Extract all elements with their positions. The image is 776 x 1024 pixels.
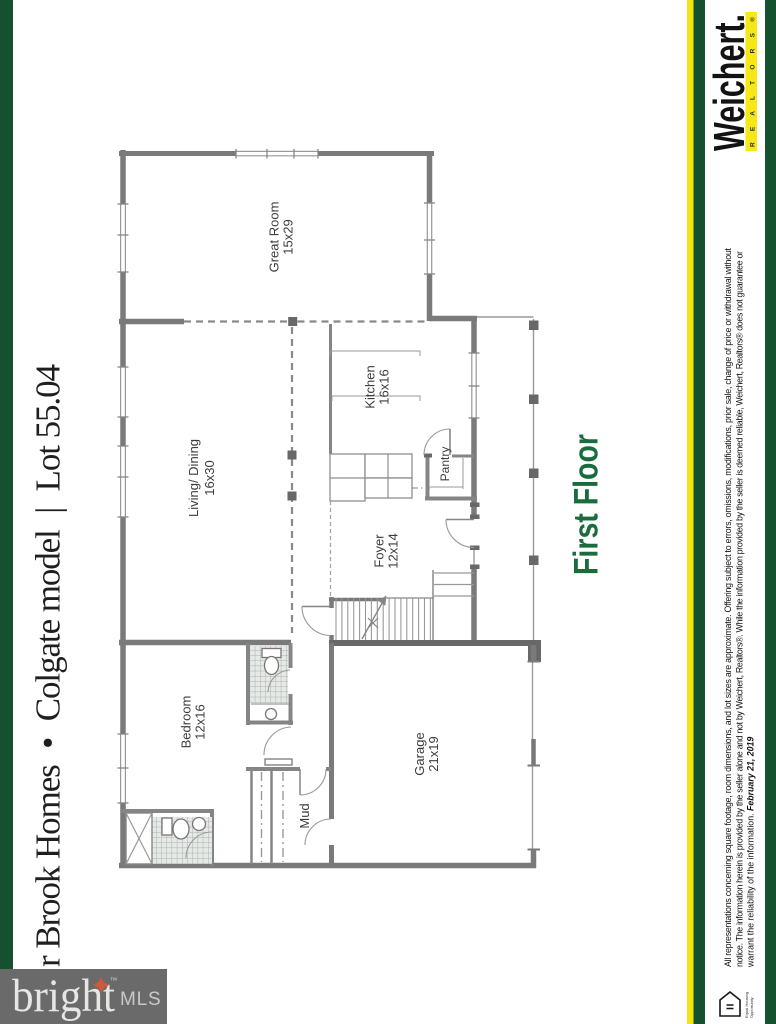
svg-text:Garage: Garage [412, 732, 427, 775]
svg-text:First Floor: First Floor [568, 434, 606, 575]
svg-text:Opportunity: Opportunity [749, 997, 754, 1018]
svg-text:All representations concerning: All representations concerning square fo… [723, 247, 733, 967]
svg-text:12x14: 12x14 [386, 533, 401, 568]
svg-text:16x30: 16x30 [202, 460, 217, 495]
svg-text:15x29: 15x29 [281, 219, 296, 254]
svg-text:Great Room: Great Room [267, 202, 282, 273]
svg-text:Kitchen: Kitchen [363, 365, 378, 408]
svg-text:™: ™ [110, 976, 118, 985]
svg-text:r Brook Homes • Colgate model: r Brook Homes • Colgate model | Lot 55.0… [29, 364, 68, 967]
svg-text:warrant the reliability of the: warrant the reliability of the informati… [746, 737, 756, 968]
svg-text:Bedroom: Bedroom [179, 696, 194, 749]
svg-text:notice. The information herein: notice. The information herein is provid… [735, 251, 745, 967]
svg-text:MLS: MLS [120, 989, 161, 1010]
svg-text:12x16: 12x16 [193, 704, 208, 739]
svg-text:21x19: 21x19 [426, 736, 441, 771]
svg-text:bright: bright [12, 970, 115, 1022]
svg-text:16x16: 16x16 [377, 369, 392, 404]
svg-text:Living/ Dining: Living/ Dining [186, 439, 201, 517]
svg-text:Foyer: Foyer [372, 534, 387, 568]
svg-text:Mud: Mud [297, 803, 312, 828]
svg-text:Pantry: Pantry [438, 447, 452, 482]
svg-text:R E A L T O R S ®: R E A L T O R S ® [749, 17, 757, 147]
